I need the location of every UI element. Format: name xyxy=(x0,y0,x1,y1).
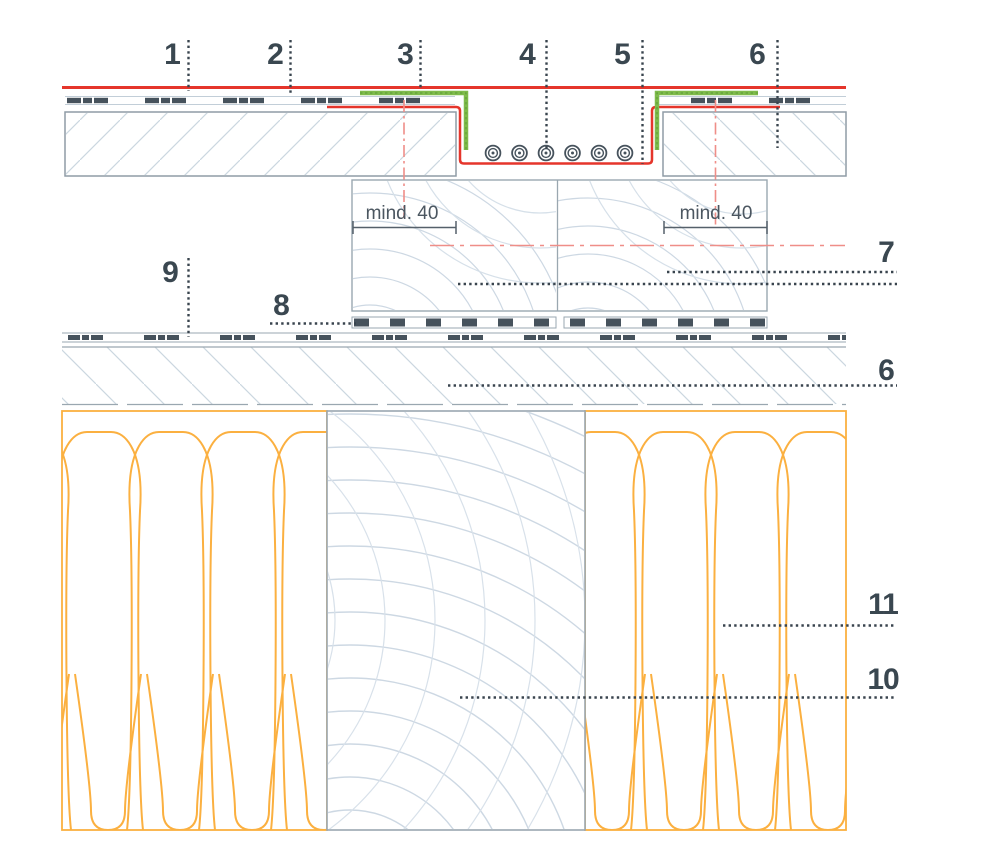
callout-3: 3 xyxy=(397,38,420,90)
callout-2-number: 2 xyxy=(267,38,283,71)
cable-conduits xyxy=(486,146,633,161)
conduit-icon xyxy=(618,146,633,161)
callout-3-number: 3 xyxy=(397,38,413,71)
battens-layer xyxy=(352,317,767,328)
callout-1-number: 1 xyxy=(164,38,180,71)
conduit-icon xyxy=(512,146,527,161)
callout-4: 4 xyxy=(519,38,546,152)
vapour-layer xyxy=(62,333,846,342)
callout-8-number: 8 xyxy=(273,289,289,322)
insulation-left xyxy=(62,411,327,830)
callout-9-number: 9 xyxy=(162,256,178,289)
dimension-left-text: mind. 40 xyxy=(366,203,439,224)
construction-detail-drawing: mind. 40 mind. 40 1 2 3 4 xyxy=(0,0,992,858)
callout-8: 8 xyxy=(270,289,356,324)
conduit-icon xyxy=(486,146,501,161)
screed-slab-right xyxy=(663,112,846,176)
screed-slab-left xyxy=(65,112,456,176)
callout-6-top-number: 6 xyxy=(749,38,765,71)
conduit-icon xyxy=(565,146,580,161)
callout-10-number: 10 xyxy=(867,663,899,696)
callout-5-number: 5 xyxy=(614,38,630,71)
deck-layer xyxy=(65,97,846,105)
detail-section-svg: mind. 40 mind. 40 1 2 3 4 xyxy=(0,0,992,858)
callout-5: 5 xyxy=(614,38,642,164)
dimension-right-text: mind. 40 xyxy=(680,203,753,224)
callout-7-number: 7 xyxy=(878,236,894,269)
callout-9: 9 xyxy=(162,256,188,337)
callout-1: 1 xyxy=(164,38,188,91)
conduit-icon xyxy=(592,146,607,161)
callout-4-number: 4 xyxy=(519,38,536,71)
callout-11-number: 11 xyxy=(868,588,898,621)
callout-6-mid-number: 6 xyxy=(878,354,894,387)
insulation-right xyxy=(585,411,846,830)
screed-layer xyxy=(62,347,846,405)
